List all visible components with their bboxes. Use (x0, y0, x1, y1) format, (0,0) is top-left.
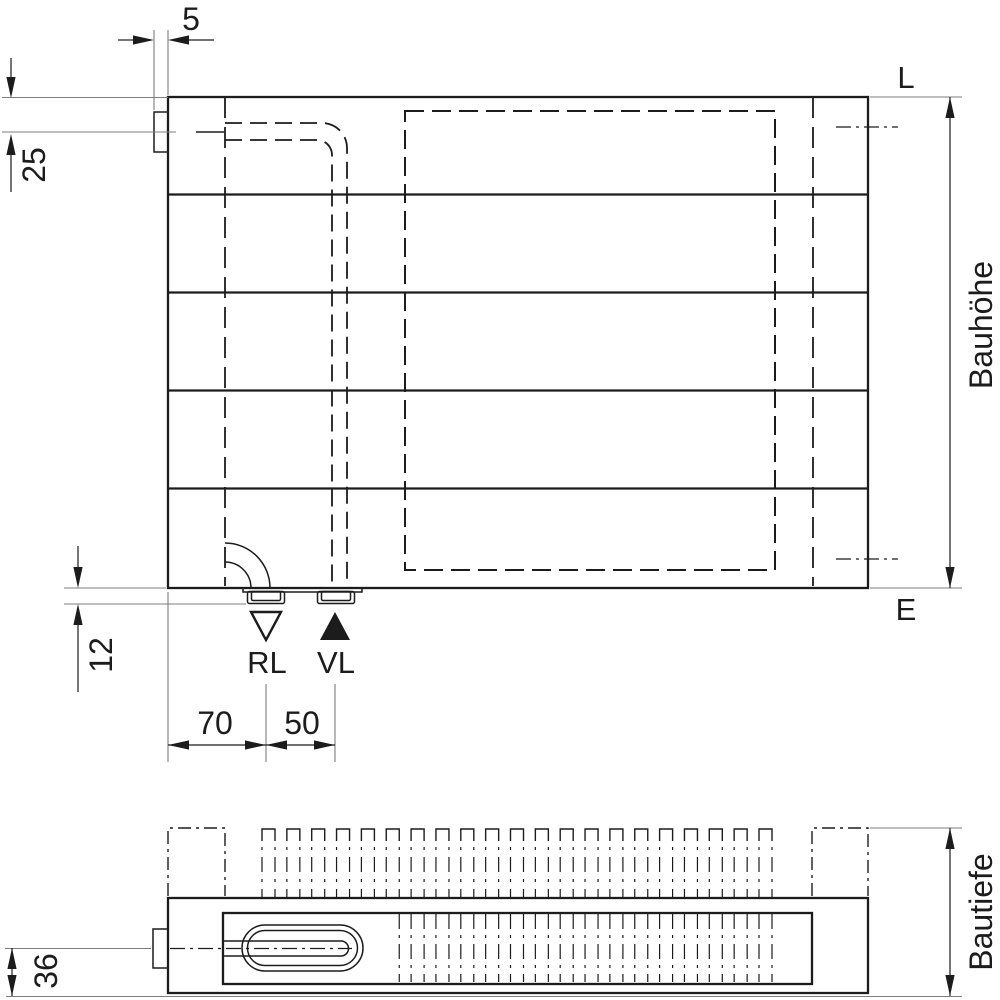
dimension-arrowhead (945, 567, 954, 588)
dim-pipe-center-offset: 36 (28, 953, 64, 989)
label-top-right-L: L (897, 60, 914, 95)
dimension-arrowhead (73, 567, 82, 588)
plan-fins-top (262, 829, 772, 897)
technical-drawing-canvas: 5 25 12 70 50 L E Bauhöhe RL VL (0, 0, 1000, 1000)
return-connection-stub (248, 592, 285, 604)
label-return-RL: RL (247, 645, 287, 680)
supply-connection-stub (318, 592, 355, 604)
supply-pipe-outer-wall (225, 123, 347, 586)
front-view-dimension-lines (11, 40, 950, 745)
label-supply-VL: VL (317, 645, 355, 680)
dim-bottom-depth: 12 (83, 637, 119, 673)
dimension-arrowhead (7, 975, 16, 996)
dimension-arrowhead (945, 828, 954, 849)
plan-fins-hidden (399, 914, 772, 982)
label-bauhoehe: Bauhöhe (963, 261, 999, 389)
dimension-arrowhead (266, 740, 287, 749)
dimension-arrowhead (168, 740, 189, 749)
label-bautiefe: Bautiefe (963, 853, 999, 970)
label-bottom-right-E: E (896, 592, 917, 627)
dimension-arrowhead (945, 975, 954, 996)
return-elbow-outer (225, 543, 270, 588)
radiator-dimension-drawing: 5 25 12 70 50 L E Bauhöhe RL VL (0, 0, 1000, 1000)
plan-left-phantom-outline (168, 828, 225, 896)
convector-dashed-outline (405, 111, 775, 570)
radiator-body-outline (168, 97, 868, 588)
dim-supply-spacing: 50 (284, 705, 320, 741)
dimension-arrowhead (133, 35, 154, 44)
dim-return-offset: 70 (197, 705, 233, 741)
dimension-arrowhead (168, 35, 189, 44)
dim-bracket-width: 5 (182, 1, 200, 37)
plan-bracket-tab (153, 929, 168, 968)
dimension-arrowhead (6, 134, 15, 155)
dim-top-offset: 25 (16, 147, 52, 183)
supply-flow-up-triangle-icon (320, 612, 350, 640)
front-view-extension-lines (2, 30, 962, 762)
radiator-section-lines (168, 195, 868, 489)
plan-right-phantom-outline (812, 828, 868, 896)
dimension-arrowhead (73, 604, 82, 625)
supply-pipe-inner-wall (225, 140, 332, 586)
dimension-arrowhead (945, 97, 954, 118)
dimension-arrowhead (6, 77, 15, 98)
dimension-arrowhead (314, 740, 335, 749)
front-view: 5 25 12 70 50 L E Bauhöhe RL VL (2, 1, 999, 762)
dimension-arrowhead (7, 948, 16, 969)
return-flow-down-triangle-icon (251, 612, 281, 640)
return-elbow-inner (225, 562, 251, 588)
plan-view: 36 Bautiefe (5, 828, 999, 997)
dimension-arrowhead (245, 740, 266, 749)
